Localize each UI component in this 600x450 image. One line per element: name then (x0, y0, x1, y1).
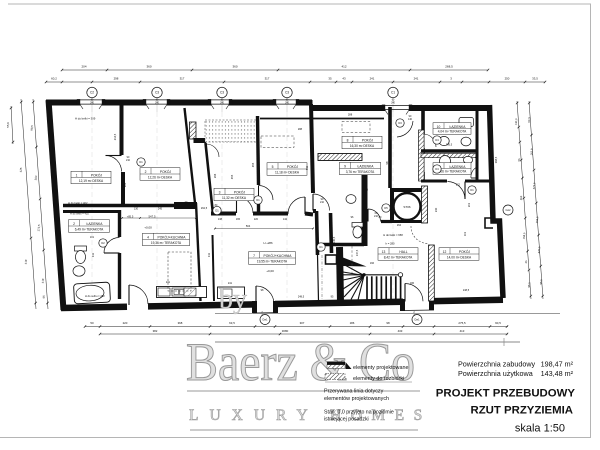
svg-text:12,19 m² DESKA: 12,19 m² DESKA (79, 179, 104, 183)
svg-text:C1: C1 (391, 91, 395, 95)
svg-text:2: 2 (145, 170, 147, 174)
svg-text:Powierzchnia zabudowy: Powierzchnia zabudowy (458, 360, 536, 369)
svg-text:Baerz & Co: Baerz & Co (186, 332, 415, 392)
svg-text:D1: D1 (319, 245, 323, 249)
svg-text:Stan: 0,0 przyjęto na poziomie: Stan: 0,0 przyjęto na poziomie (324, 410, 394, 416)
svg-text:4,04 m² TERAKOTA: 4,04 m² TERAKOTA (438, 129, 467, 133)
svg-text:55,9: 55,9 (6, 122, 10, 128)
svg-text:PROJEKT PRZEBUDOWY: PROJEKT PRZEBUDOWY (436, 388, 576, 400)
svg-text:140: 140 (408, 118, 413, 121)
svg-text:1: 1 (76, 173, 78, 177)
svg-text:elementy do rozbiórki: elementy do rozbiórki (353, 376, 404, 382)
svg-text:473,5: 473,5 (532, 182, 536, 189)
svg-text:248,5: 248,5 (298, 296, 305, 299)
svg-text:19,36 m² TERAKOTA: 19,36 m² TERAKOTA (151, 241, 182, 245)
svg-text:298: 298 (114, 77, 119, 81)
svg-text:4: 4 (147, 235, 149, 239)
svg-text:138: 138 (218, 218, 223, 221)
svg-text:D1: D1 (256, 198, 260, 202)
svg-text:D3: D3 (398, 121, 402, 125)
svg-text:2: 2 (73, 222, 75, 226)
svg-text:ST06: ST06 (403, 205, 411, 209)
svg-text:266,5: 266,5 (446, 144, 453, 147)
svg-text:288: 288 (298, 128, 303, 131)
svg-text:C3: C3 (220, 91, 224, 95)
svg-text:382: 382 (153, 329, 158, 333)
svg-text:145,5: 145,5 (332, 236, 336, 243)
svg-text:by: by (219, 284, 247, 315)
svg-text:204: 204 (81, 65, 86, 69)
svg-text:D1: D1 (215, 209, 219, 213)
svg-text:98,5: 98,5 (30, 125, 34, 131)
svg-text:311: 311 (91, 252, 95, 257)
svg-text:419: 419 (24, 259, 28, 264)
svg-text:162,9: 162,9 (529, 148, 533, 155)
svg-text:90,5: 90,5 (495, 321, 501, 325)
svg-text:Dw1: Dw1 (414, 319, 420, 322)
svg-text:300: 300 (34, 175, 38, 180)
svg-text:63,5: 63,5 (229, 321, 235, 325)
svg-text:C3: C3 (155, 91, 159, 95)
svg-text:9: 9 (344, 164, 346, 168)
svg-text:360: 360 (232, 65, 237, 69)
svg-text:+0,00: +0,00 (144, 226, 152, 230)
svg-text:210: 210 (126, 159, 131, 162)
svg-text:POKÓJ: POKÓJ (459, 249, 471, 254)
svg-text:POKÓJ+KUCHNIA: POKÓJ+KUCHNIA (158, 234, 187, 239)
svg-text:H do belki = 309: H do belki = 309 (75, 117, 96, 121)
svg-text:12,26 m² DESKA: 12,26 m² DESKA (148, 175, 173, 179)
svg-text:HALL: HALL (399, 250, 407, 254)
svg-text:455: 455 (251, 162, 255, 167)
svg-text:245: 245 (158, 208, 163, 211)
svg-text:206: 206 (123, 182, 127, 187)
svg-text:8: 8 (347, 138, 349, 142)
svg-text:455: 455 (230, 174, 234, 179)
svg-text:3: 3 (219, 190, 221, 194)
svg-text:RZUT PRZYZIEMIA: RZUT PRZYZIEMIA (470, 405, 573, 417)
svg-text:8,42 m² TERAKOTA: 8,42 m² TERAKOTA (384, 255, 413, 259)
svg-text:11,32 m² DESKA: 11,32 m² DESKA (222, 196, 247, 200)
svg-text:241: 241 (414, 77, 419, 81)
svg-text:198,47 m²: 198,47 m² (541, 360, 574, 369)
svg-text:6,49 m² TERAKOTA: 6,49 m² TERAKOTA (75, 227, 104, 231)
svg-text:241: 241 (370, 77, 375, 81)
svg-text:H do belki = 402: H do belki = 402 (70, 212, 89, 216)
svg-text:165: 165 (236, 218, 241, 221)
svg-text:142: 142 (283, 218, 288, 221)
svg-text:419: 419 (41, 278, 45, 283)
svg-text:skala 1:50: skala 1:50 (515, 423, 565, 435)
svg-text:10: 10 (437, 125, 441, 129)
svg-text:288: 288 (348, 113, 353, 117)
svg-text:POKÓJ: POKÓJ (160, 169, 172, 174)
svg-text:D1: D1 (139, 160, 143, 164)
svg-text:4,06 m² TERAKOTA: 4,06 m² TERAKOTA (438, 169, 467, 173)
svg-text:365: 365 (519, 195, 523, 200)
svg-text:412: 412 (341, 65, 346, 69)
svg-text:504: 504 (246, 224, 251, 228)
svg-text:H do belki = 402: H do belki = 402 (68, 201, 88, 205)
svg-text:307: 307 (300, 321, 305, 325)
svg-text:D2: D2 (101, 241, 105, 245)
svg-text:250: 250 (505, 77, 510, 81)
svg-text:H do sufitu = 282: H do sufitu = 282 (85, 294, 105, 298)
svg-text:35: 35 (328, 77, 332, 81)
svg-text:64,9: 64,9 (527, 117, 531, 123)
svg-text:ŁAZIENKA: ŁAZIENKA (450, 165, 467, 169)
svg-text:268,5: 268,5 (445, 65, 453, 69)
svg-text:7: 7 (253, 254, 255, 258)
svg-text:ŁAZIENKA: ŁAZIENKA (87, 222, 104, 226)
svg-text:D5: D5 (384, 206, 388, 210)
svg-text:96,5: 96,5 (527, 282, 531, 288)
svg-text:186: 186 (350, 321, 355, 325)
svg-text:60,2: 60,2 (51, 77, 57, 81)
svg-text:POKÓJ+KUCHNIA: POKÓJ+KUCHNIA (264, 253, 293, 258)
svg-text:D4: D4 (435, 138, 439, 142)
svg-text:222: 222 (456, 184, 461, 187)
svg-text:43: 43 (342, 77, 346, 81)
svg-text:470,5: 470,5 (537, 246, 541, 253)
svg-text:h = 280: h = 280 (385, 242, 395, 246)
svg-text:101: 101 (90, 236, 95, 239)
svg-text:214,5: 214,5 (113, 133, 117, 140)
svg-text:360: 360 (146, 65, 151, 69)
svg-text:ŁAZIENKA: ŁAZIENKA (450, 125, 467, 129)
svg-text:296: 296 (213, 173, 217, 178)
svg-text:Powierzchnia użytkowa: Powierzchnia użytkowa (458, 369, 533, 378)
svg-text:Przerywana linia dotyczy: Przerywana linia dotyczy (324, 388, 384, 394)
svg-text:147,5: 147,5 (355, 249, 359, 256)
svg-text:D1: D1 (470, 188, 474, 192)
svg-text:LUXURY: LUXURY (189, 407, 319, 424)
svg-text:186: 186 (410, 282, 415, 285)
svg-text:317: 317 (180, 77, 185, 81)
svg-text:5: 5 (272, 165, 274, 169)
svg-text:elementy projektowane: elementy projektowane (353, 365, 408, 371)
svg-text:256,5: 256,5 (535, 216, 539, 223)
svg-text:33,5: 33,5 (532, 77, 538, 81)
svg-text:POKÓJ: POKÓJ (287, 164, 299, 169)
svg-text:16,30 m² DESKA: 16,30 m² DESKA (350, 144, 375, 148)
svg-text:511: 511 (305, 165, 309, 170)
svg-text:3,76 m² TERAKOTA: 3,76 m² TERAKOTA (346, 170, 375, 174)
svg-text:POKÓJ: POKÓJ (234, 189, 246, 194)
svg-text:50: 50 (90, 321, 94, 325)
svg-text:14,00 m² DESKA: 14,00 m² DESKA (447, 255, 472, 259)
svg-text:Cw2: Cw2 (505, 209, 511, 212)
svg-text:241: 241 (166, 281, 171, 284)
svg-text:98: 98 (386, 321, 390, 325)
svg-text:11,18 m² DESKA: 11,18 m² DESKA (275, 170, 300, 174)
svg-text:elementów projektowanych: elementów projektowanych (324, 396, 389, 402)
svg-text:248,5: 248,5 (463, 289, 470, 292)
svg-text:C3: C3 (285, 91, 289, 95)
svg-text:368,5: 368,5 (494, 156, 498, 163)
svg-text:143,48 m²: 143,48 m² (541, 369, 574, 378)
svg-text:220: 220 (123, 321, 128, 325)
svg-text:240: 240 (434, 207, 438, 212)
svg-text:96,5: 96,5 (539, 279, 543, 285)
svg-text:C2: C2 (90, 91, 94, 95)
svg-text:130: 130 (134, 208, 139, 211)
svg-text:H do belki = 658: H do belki = 658 (383, 233, 403, 237)
svg-text:140,0: 140,0 (514, 118, 518, 125)
svg-text:13: 13 (382, 250, 386, 254)
svg-text:19,55 m² TERAKOTA: 19,55 m² TERAKOTA (257, 259, 288, 263)
svg-text:275,5: 275,5 (458, 321, 466, 325)
svg-text:262,5: 262,5 (201, 207, 208, 210)
svg-text:ŁAZIENKA: ŁAZIENKA (358, 164, 375, 168)
svg-text:220: 220 (254, 218, 259, 221)
svg-text:264: 264 (397, 224, 402, 227)
svg-text:210: 210 (320, 201, 325, 204)
svg-text:POKÓJ: POKÓJ (362, 137, 374, 142)
svg-text:12: 12 (443, 250, 447, 254)
svg-text:+0,00: +0,00 (266, 269, 274, 273)
svg-text:210: 210 (374, 215, 379, 218)
svg-text:166: 166 (370, 262, 375, 265)
svg-text:H +286: H +286 (263, 241, 273, 245)
svg-text:201: 201 (467, 202, 471, 207)
svg-text:311: 311 (207, 252, 211, 257)
svg-text:POKÓJ: POKÓJ (91, 172, 103, 177)
svg-text:101: 101 (463, 231, 467, 236)
svg-text:172,5: 172,5 (37, 224, 42, 232)
svg-text:Dw1: Dw1 (262, 319, 268, 322)
svg-text:413: 413 (460, 329, 465, 333)
svg-text:D4: D4 (435, 167, 439, 171)
svg-text:368: 368 (178, 321, 183, 325)
svg-text:94,5: 94,5 (187, 147, 191, 153)
svg-text:istniejącej posadzki: istniejącej posadzki (324, 417, 369, 423)
svg-text:317: 317 (265, 77, 270, 81)
svg-text:425: 425 (19, 167, 23, 172)
svg-text:168,5: 168,5 (522, 232, 526, 239)
